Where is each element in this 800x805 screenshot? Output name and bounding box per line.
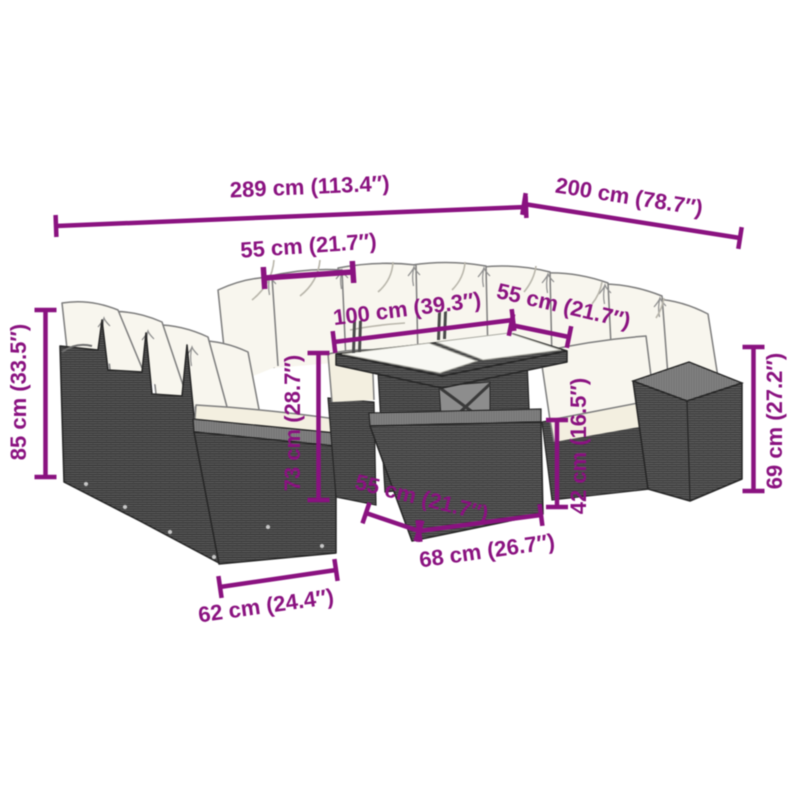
svg-text:69 cm (27.2″): 69 cm (27.2″): [762, 353, 787, 490]
svg-text:42 cm (16.5″): 42 cm (16.5″): [566, 378, 591, 515]
svg-text:85 cm (33.5″): 85 cm (33.5″): [6, 324, 31, 461]
svg-text:73 cm (28.7″): 73 cm (28.7″): [280, 355, 305, 492]
